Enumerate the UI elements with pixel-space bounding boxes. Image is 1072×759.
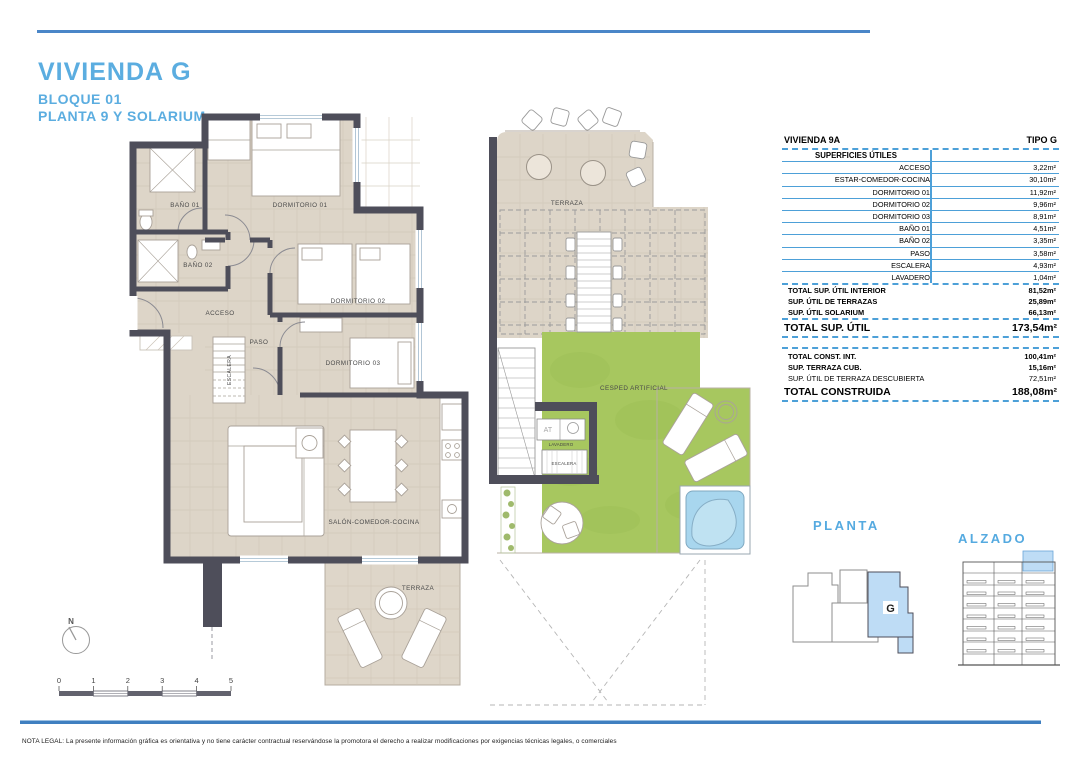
room-label-bano1: BAÑO 01	[170, 200, 199, 209]
room-label-cesped: CESPED ARTIFICIAL	[600, 385, 668, 392]
section-gap	[782, 338, 1059, 349]
superficies-section: SUPERFICIES ÚTILES ACCESO3,22m² ESTAR-CO…	[782, 150, 1059, 285]
planter	[501, 487, 515, 553]
bottom-divider	[20, 720, 1041, 724]
table-row: DORMITORIO 0111,92m²	[782, 187, 1059, 199]
table-row: DORMITORIO 029,96m²	[782, 199, 1059, 211]
floorplan-sheet: VIVIENDA G BLOQUE 01 PLANTA 9 Y SOLARIUM	[0, 0, 1072, 759]
room-label-lavadero: LAVADERO	[549, 442, 574, 447]
page-title: VIVIENDA G	[38, 58, 206, 87]
total-util-row: TOTAL SUP. ÚTIL173,54m²	[782, 318, 1059, 338]
planta-label: PLANTA	[813, 518, 880, 533]
table-header: VIVIENDA 9A TIPO G	[782, 135, 1059, 150]
svg-text:1: 1	[91, 676, 95, 685]
room-label-bano2: BAÑO 02	[183, 260, 212, 269]
subtotal-row: TOTAL SUP. ÚTIL INTERIOR81,52m²	[782, 285, 1059, 296]
side-table	[296, 428, 323, 458]
subtotal-row: SUP. ÚTIL SOLARIUM66,13m²	[782, 307, 1059, 318]
key-plan-planta: G	[788, 545, 938, 665]
highlighted-floor	[1023, 551, 1053, 571]
wardrobe	[208, 120, 250, 160]
solarium-stair-box: ESCALERA	[542, 450, 587, 474]
column-divider	[930, 150, 932, 283]
surface-area-table: VIVIENDA 9A TIPO G SUPERFICIES ÚTILES AC…	[782, 135, 1059, 402]
scale-ticks: 0 1 2 3 4 5	[57, 676, 233, 685]
room-label-dorm3: DORMITORIO 03	[326, 360, 381, 367]
north-label: N	[68, 617, 74, 626]
table-row: BAÑO 014,51m²	[782, 223, 1059, 235]
svg-text:3: 3	[160, 676, 164, 685]
room-label-escalera: ESCALERA	[227, 355, 233, 385]
room-label-escalera2: ESCALERA	[551, 461, 576, 466]
scale-bar: 0 1 2 3 4 5	[48, 672, 248, 704]
table-header-right: TIPO G	[1026, 135, 1057, 145]
room-label-acceso: ACCESO	[206, 310, 235, 317]
svg-text:2: 2	[126, 676, 130, 685]
table-row: DORMITORIO 038,91m²	[782, 211, 1059, 223]
bed-double	[252, 120, 340, 196]
paving-dashed	[490, 560, 705, 705]
room-label-at: AT	[544, 427, 553, 434]
dining-table	[338, 430, 408, 502]
table-header-left: VIVIENDA 9A	[784, 135, 840, 145]
table-row: PASO3,58m²	[782, 248, 1059, 260]
solarium-floorplan: AT LAVADERO ESCALERA	[485, 100, 797, 715]
legal-note: NOTA LEGAL: La presente información gráf…	[22, 738, 617, 745]
north-arrow-icon: N	[50, 608, 102, 660]
key-plan-alzado	[950, 548, 1065, 670]
table-row: ESTAR-COMEDOR-COCINA30,10m²	[782, 174, 1059, 186]
subtotal-row: SUP. ÚTIL DE TERRAZAS25,89m²	[782, 296, 1059, 307]
svg-text:0: 0	[57, 676, 61, 685]
kitchen-counter	[440, 398, 464, 558]
building-footprint	[793, 570, 878, 642]
room-label-terraza2: TERRAZA	[551, 200, 584, 207]
table-row: ACCESO3,22m²	[782, 162, 1059, 174]
building-elevation	[958, 562, 1060, 665]
jacuzzi	[680, 486, 750, 554]
svg-text:5: 5	[229, 676, 233, 685]
alzado-label: ALZADO	[958, 531, 1027, 546]
grass-round-table	[541, 502, 583, 544]
apartment-floorplan: BAÑO 01 DORMITORIO 01 BAÑO 02 DORMITORIO…	[110, 95, 482, 717]
room-label-dorm2: DORMITORIO 02	[331, 298, 386, 305]
total-construida-row: TOTAL CONSTRUIDA188,08m²	[782, 384, 1059, 402]
construida-row: SUP. ÚTIL DE TERRAZA DESCUBIERTA72,51m²	[782, 373, 1059, 384]
toilet-bano1	[139, 210, 153, 230]
room-label-terraza: TERRAZA	[402, 585, 435, 592]
construida-row: TOTAL CONST. INT.100,41m²	[782, 351, 1059, 362]
solarium-stairs	[498, 348, 535, 478]
shower-bano2	[138, 240, 178, 282]
svg-text:4: 4	[195, 676, 199, 685]
room-label-dorm1: DORMITORIO 01	[273, 202, 328, 209]
construida-row: SUP. TERRAZA CUB.15,16m²	[782, 362, 1059, 373]
section-title-row: SUPERFICIES ÚTILES	[782, 150, 1059, 162]
tick-marks	[59, 686, 231, 691]
scale-segments	[59, 691, 231, 696]
room-label-paso: PASO	[250, 339, 269, 346]
table-row: LAVADERO1,04m²	[782, 272, 1059, 283]
top-divider	[37, 30, 870, 33]
wall-stub	[203, 560, 222, 627]
table-row: BAÑO 023,35m²	[782, 235, 1059, 247]
unit-letter: G	[886, 603, 895, 615]
room-label-salon: SALÓN-COMEDOR-COCINA	[329, 517, 420, 526]
table-row: ESCALERA4,93m²	[782, 260, 1059, 272]
shower-bano1	[150, 148, 195, 192]
